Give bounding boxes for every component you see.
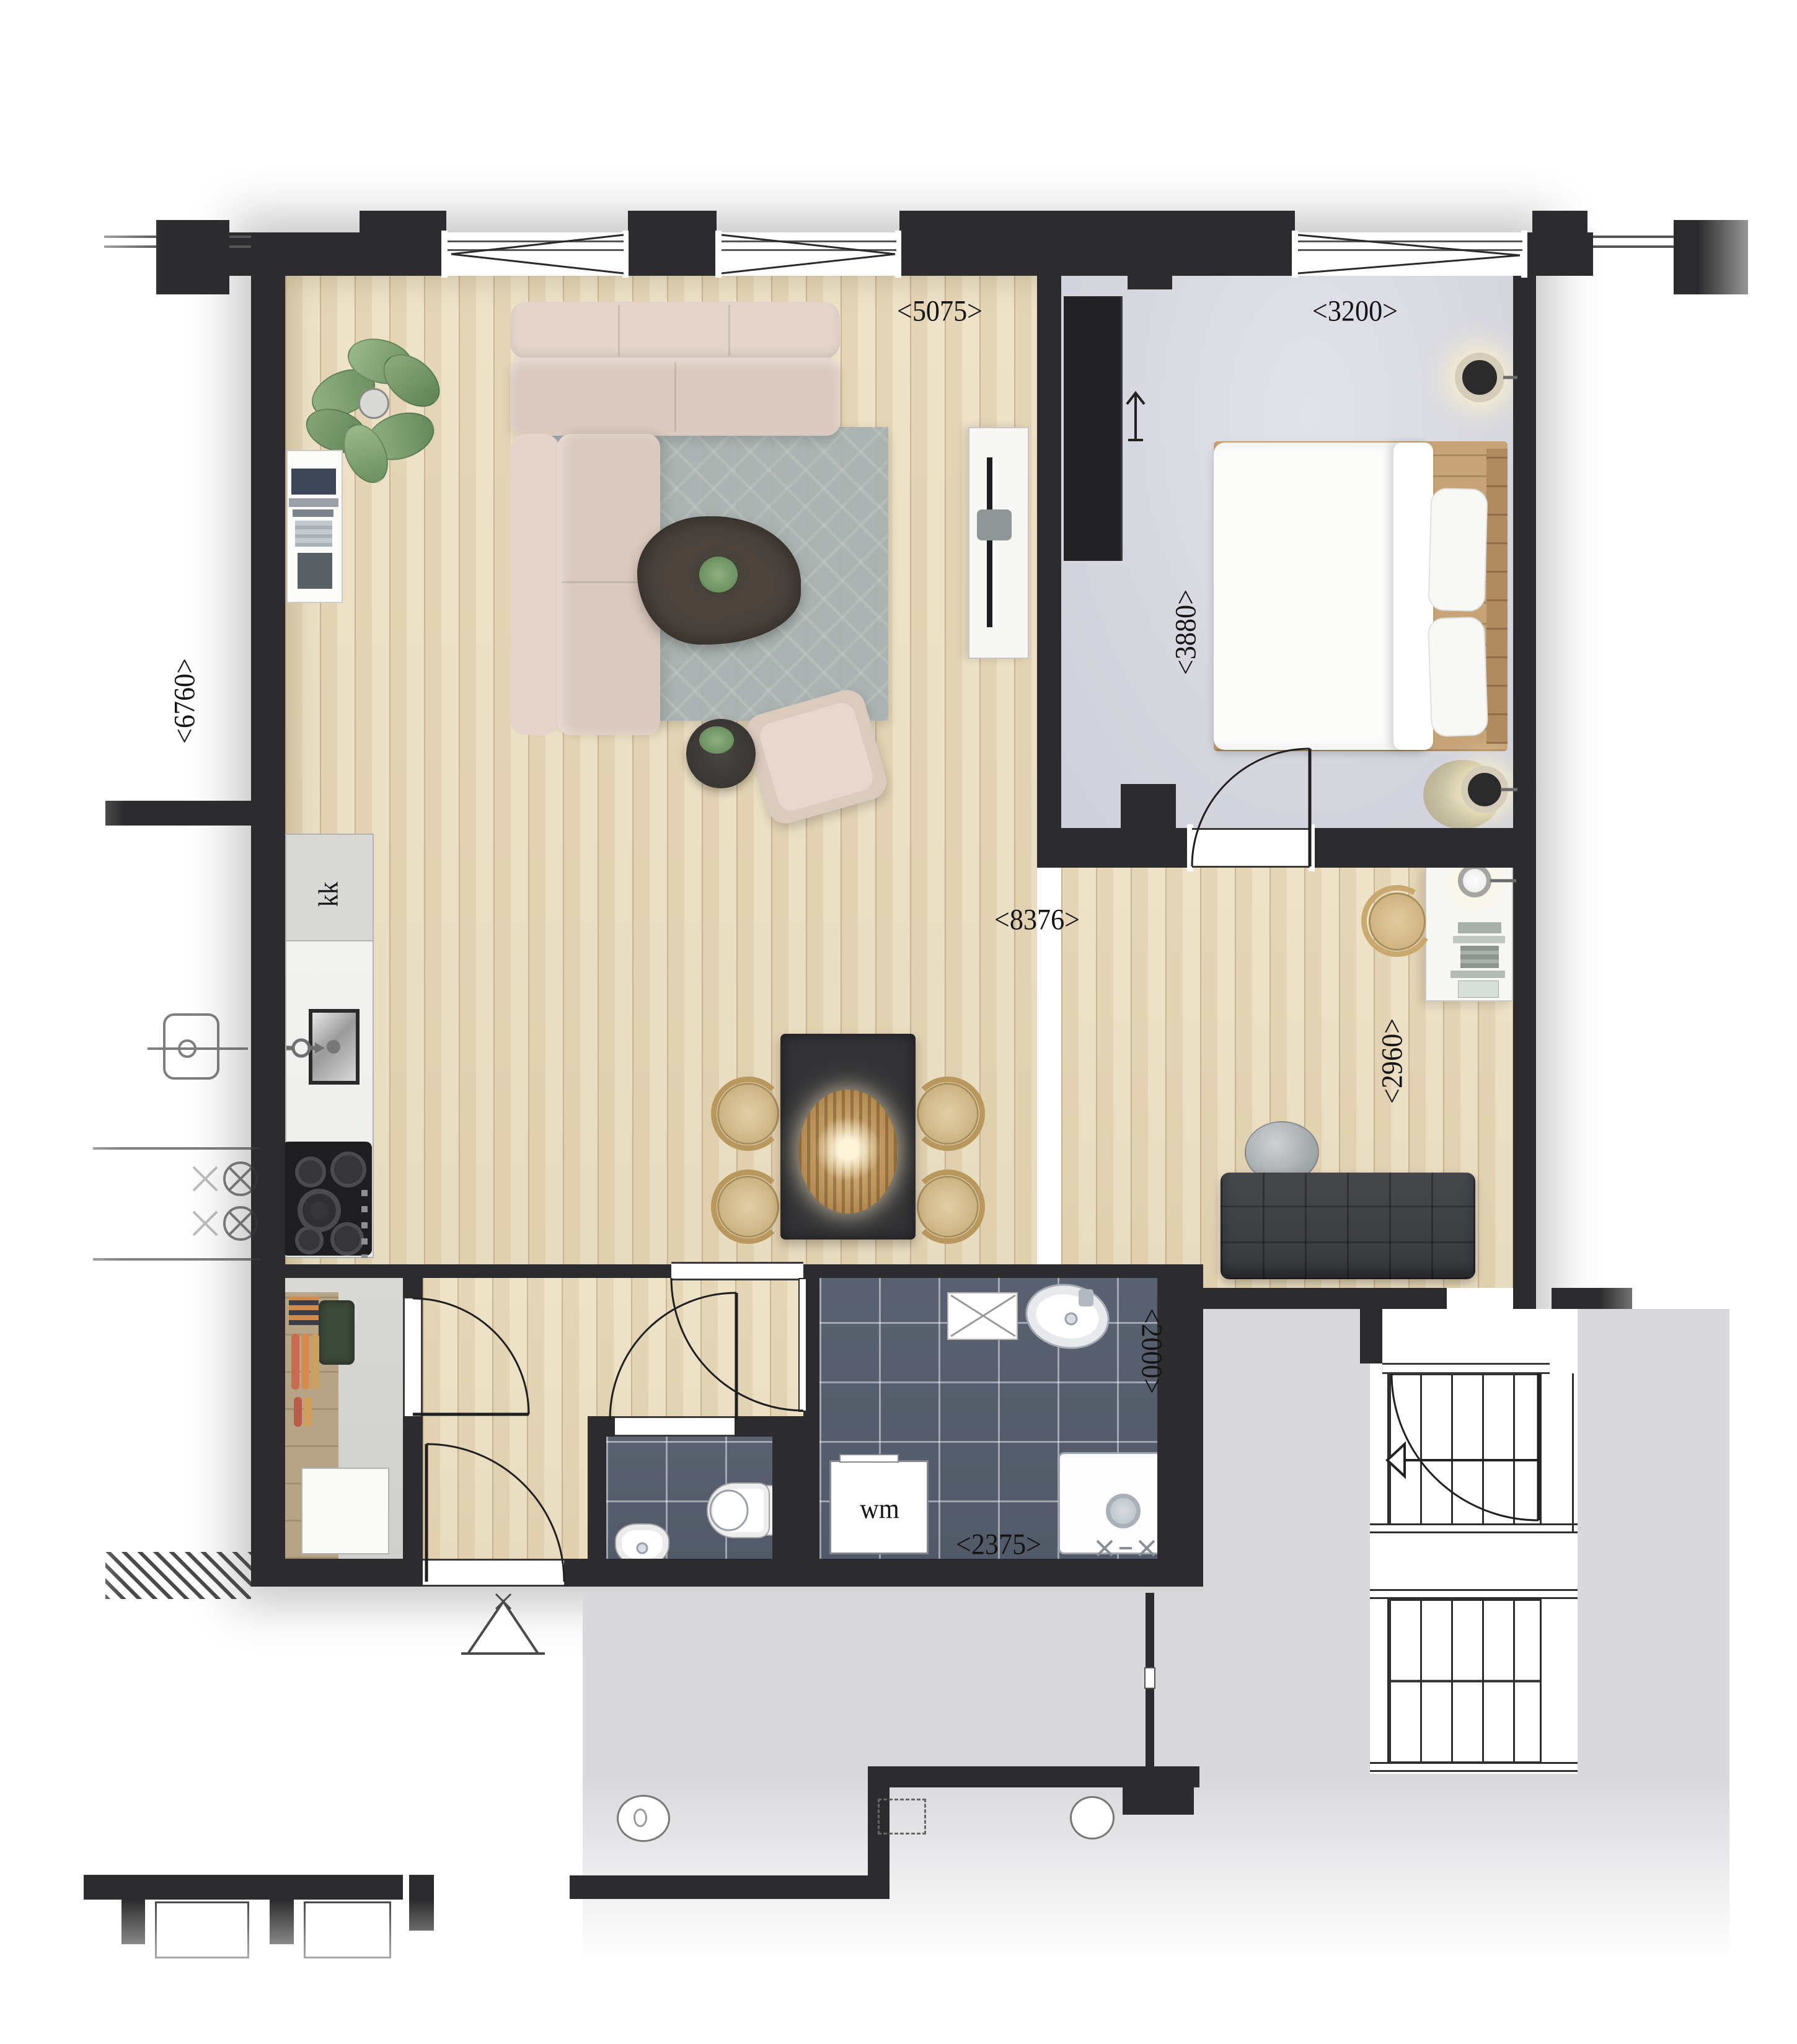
window-jamb [441, 231, 448, 278]
table-plant [699, 557, 738, 592]
desk-books [1460, 946, 1499, 968]
corner-sofa-back-top [510, 302, 840, 359]
desk-books [1453, 936, 1505, 943]
neighbour-bottom [0, 1754, 1797, 2044]
washing-machine-label: wm [860, 1492, 899, 1525]
cooktop-burner [330, 1222, 364, 1256]
bedside-lamp [1455, 353, 1504, 402]
storage-bottle [304, 1397, 312, 1427]
storage-bottle [291, 1334, 299, 1390]
bed-pillow [1428, 616, 1489, 737]
wall-right [1513, 232, 1536, 1309]
wall-bedroom-partition [1037, 276, 1061, 868]
storage-bottle [301, 1334, 309, 1390]
washing-machine-drawer [839, 1454, 899, 1463]
desk-books [1458, 980, 1499, 998]
corner-sofa-seam [618, 305, 620, 356]
storage-vacuum [319, 1300, 355, 1365]
dim-bathroom-depth: <2000> [1135, 1308, 1169, 1394]
dining-chair-seat [717, 1083, 779, 1145]
fridge-label: kk [313, 882, 345, 907]
shelf-books [293, 509, 333, 517]
neighbour-top-left [37, 205, 254, 328]
stairs-flight-upper [1387, 1373, 1542, 1533]
tv-sideboard [968, 427, 1029, 659]
dim-living-width: <5075> [897, 294, 982, 328]
neighbour-boundary-threshold [1144, 1667, 1155, 1689]
bedroom-door-threshold [1192, 828, 1310, 868]
tv-device [977, 509, 1012, 540]
neighbour-boundary-line [1146, 1689, 1154, 1766]
window-jamb [715, 231, 722, 278]
bedroom-window [1298, 232, 1522, 276]
wall-bedroom-bottom [1310, 828, 1513, 868]
storage-door-threshold [403, 1298, 423, 1416]
dining-chair-seat [917, 1176, 979, 1238]
bench-sofa [1221, 1173, 1475, 1279]
desk-books [1458, 922, 1501, 933]
kitchen-sink-drain [327, 1040, 340, 1054]
storage-bottle [311, 1334, 319, 1390]
window-jamb [1292, 231, 1298, 278]
stair-rail [1370, 1523, 1578, 1533]
wall-toilet-top [735, 1416, 772, 1437]
shelf-books [289, 498, 338, 507]
neighbour-boundary-line [1146, 1593, 1154, 1667]
shelf-books [298, 553, 332, 589]
wardrobe [1064, 296, 1123, 561]
dim-living-depth: <6760> [168, 658, 202, 744]
cooktop-burner [330, 1152, 366, 1187]
wall-top-pier [360, 211, 446, 234]
neighbour-wall-stub [1543, 1283, 1698, 1320]
wall-top [626, 232, 719, 276]
pendant-lamp-rattan [798, 1090, 898, 1214]
dim-overall-width: <8376> [994, 903, 1080, 937]
bathroom-cabinet [947, 1292, 1018, 1340]
bedside-lamp [1461, 766, 1508, 813]
dim-bathroom-width: <2375> [956, 1528, 1041, 1562]
toilet-bowl [707, 1482, 770, 1538]
hall-door-leaf [798, 1278, 807, 1412]
dim-nook-depth: <2960> [1375, 1018, 1410, 1104]
shelf-books [291, 469, 336, 495]
wall-storage-right [403, 1416, 423, 1562]
pouf-plant [699, 726, 734, 754]
bathroom-basin-tap [1079, 1289, 1093, 1306]
neighbour-top-right [1543, 205, 1797, 328]
shower-drain [1106, 1494, 1141, 1528]
storage-box [289, 1297, 319, 1325]
dim-bedroom-width: <3200> [1312, 294, 1398, 328]
wall-hall-top [803, 1264, 1203, 1278]
wall-top-pier [628, 211, 717, 234]
entrance-marker [461, 1594, 545, 1654]
living-window [448, 232, 624, 276]
corner-sofa-back-left [510, 434, 560, 735]
cooktop-burner [295, 1226, 324, 1254]
cooktop-burner [295, 1156, 326, 1187]
tv-screen [987, 457, 992, 627]
bed-pillow [1428, 488, 1488, 612]
wall-bedroom-pier [1128, 276, 1172, 289]
stairwell-door-threshold [1382, 1363, 1550, 1374]
floor-plan: kk [0, 0, 1797, 2044]
bed-duvet-fold [1393, 443, 1433, 750]
neighbour-kitchen-symbols [93, 1015, 260, 1259]
stair-rail [1370, 1589, 1578, 1599]
storage-unit [301, 1468, 389, 1554]
living-window [722, 232, 896, 276]
wall-bottom [564, 1559, 1203, 1587]
entrance-door-threshold [423, 1559, 564, 1587]
desk-books [1450, 971, 1505, 978]
wall-bedroom-pier [1121, 784, 1176, 828]
toilet-door-threshold [615, 1416, 735, 1437]
dim-bedroom-depth: <3880> [1169, 589, 1203, 675]
cooktop-controls [361, 1190, 368, 1258]
wall-bedroom-bottom [1037, 828, 1192, 868]
wall-top [899, 232, 1296, 276]
dining-chair-seat [917, 1083, 979, 1145]
hall-door-threshold [671, 1262, 803, 1280]
wall-storage-right [403, 1278, 423, 1298]
floor-plant-pot [358, 388, 389, 419]
storage-bottle [294, 1397, 302, 1427]
desk-chair-seat [1369, 892, 1426, 951]
wall-top-pier [899, 211, 1295, 234]
stair-side-line [1572, 1373, 1574, 1533]
shelf-books [295, 521, 332, 547]
wall-stair-stub [1360, 1309, 1382, 1363]
desk-lamp [1458, 864, 1491, 897]
neighbour-left [0, 787, 285, 1611]
wall-hall-top [285, 1264, 671, 1278]
wall-nook-bottom [1203, 1288, 1447, 1309]
dining-chair-seat [717, 1176, 779, 1238]
stairs-flight-lower [1387, 1599, 1542, 1763]
corner-sofa-seam [674, 362, 676, 431]
cooktop-burner [298, 1189, 341, 1232]
bed-headboard [1486, 449, 1508, 744]
corner-sofa-seam [728, 305, 730, 356]
